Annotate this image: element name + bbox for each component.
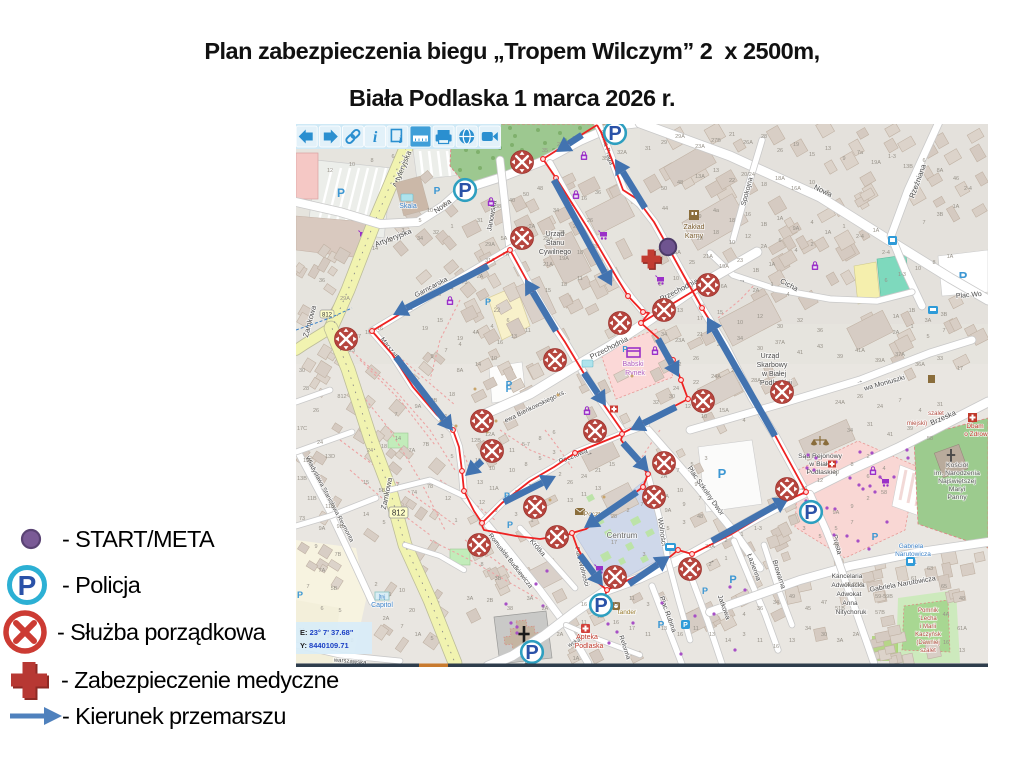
svg-text:9: 9 — [682, 502, 685, 508]
svg-text:24: 24 — [673, 386, 679, 392]
svg-text:12: 12 — [387, 238, 393, 244]
svg-text:10: 10 — [509, 468, 515, 474]
svg-text:P: P — [683, 622, 688, 629]
svg-text:34: 34 — [553, 208, 559, 214]
svg-text:9: 9 — [698, 214, 701, 220]
svg-text:1A: 1A — [825, 230, 832, 236]
svg-text:16: 16 — [581, 602, 587, 608]
svg-text:58: 58 — [881, 490, 887, 496]
svg-text:48: 48 — [959, 596, 965, 602]
svg-text:10: 10 — [677, 488, 683, 494]
svg-text:szalet: szalet — [920, 648, 936, 654]
svg-text:26: 26 — [693, 356, 699, 362]
svg-text:2A: 2A — [661, 474, 668, 480]
svg-text:5: 5 — [834, 526, 837, 532]
svg-text:20/24: 20/24 — [741, 172, 755, 178]
svg-text:7B: 7B — [423, 442, 430, 448]
svg-text:7: 7 — [942, 328, 945, 334]
svg-text:9A: 9A — [319, 526, 326, 532]
svg-text:6: 6 — [884, 278, 887, 284]
svg-text:1B: 1B — [753, 268, 760, 274]
svg-text:46: 46 — [953, 176, 959, 182]
svg-text:3: 3 — [440, 434, 443, 440]
svg-text:13: 13 — [709, 632, 715, 638]
svg-text:15A: 15A — [719, 408, 729, 414]
svg-text:22: 22 — [729, 178, 735, 184]
svg-text:39: 39 — [837, 354, 843, 360]
svg-text:74: 74 — [411, 490, 417, 496]
svg-text:16: 16 — [613, 620, 619, 626]
svg-text:2A: 2A — [542, 606, 549, 612]
svg-text:13: 13 — [613, 602, 619, 608]
svg-text:7a: 7a — [857, 150, 864, 156]
svg-text:8A: 8A — [457, 368, 464, 374]
svg-text:17: 17 — [629, 626, 635, 632]
svg-text:30: 30 — [777, 324, 783, 330]
svg-text:P: P — [729, 574, 736, 586]
svg-text:3: 3 — [742, 632, 745, 638]
svg-text:16: 16 — [677, 632, 683, 638]
svg-text:35: 35 — [602, 156, 608, 162]
svg-text:7B: 7B — [335, 552, 342, 558]
svg-text:12: 12 — [327, 168, 333, 174]
svg-text:40: 40 — [509, 198, 515, 204]
svg-text:13A: 13A — [695, 174, 705, 180]
svg-text:4: 4 — [742, 418, 745, 424]
svg-text:21: 21 — [729, 132, 735, 138]
svg-text:34: 34 — [773, 600, 779, 606]
svg-text:1A: 1A — [873, 228, 880, 234]
svg-text:48: 48 — [697, 514, 703, 520]
svg-text:2-4: 2-4 — [856, 234, 864, 240]
svg-text:9: 9 — [694, 482, 697, 488]
svg-text:2: 2 — [374, 582, 377, 588]
svg-text:Podlaska: Podlaska — [575, 643, 604, 650]
svg-text:1: 1 — [740, 532, 743, 538]
svg-text:13: 13 — [713, 168, 719, 174]
svg-text:P: P — [297, 590, 303, 600]
svg-text:50: 50 — [523, 192, 529, 198]
svg-text:9A: 9A — [793, 226, 800, 232]
svg-text:2A: 2A — [383, 616, 390, 622]
svg-text:13: 13 — [511, 334, 517, 340]
svg-text:1A: 1A — [893, 314, 900, 320]
svg-text:2B: 2B — [487, 598, 494, 604]
svg-text:24A: 24A — [711, 374, 721, 380]
svg-text:2A: 2A — [853, 632, 860, 638]
svg-text:13D: 13D — [325, 454, 335, 460]
svg-text:7: 7 — [394, 412, 397, 418]
svg-text:12: 12 — [479, 500, 485, 506]
svg-text:15: 15 — [545, 288, 551, 294]
svg-text:5: 5 — [418, 218, 421, 224]
svg-text:17: 17 — [697, 316, 703, 322]
svg-text:1: 1 — [910, 324, 913, 330]
svg-text:Najświętszej: Najświętszej — [938, 478, 976, 485]
svg-text:P: P — [434, 186, 441, 197]
svg-text:21: 21 — [595, 468, 601, 474]
svg-text:P: P — [594, 595, 607, 617]
svg-text:2: 2 — [724, 538, 727, 544]
svg-text:22: 22 — [494, 308, 501, 314]
svg-text:3: 3 — [514, 512, 517, 518]
svg-text:P: P — [872, 532, 879, 543]
svg-text:P: P — [18, 570, 37, 601]
svg-text:16: 16 — [773, 644, 779, 650]
svg-text:28: 28 — [611, 514, 617, 520]
svg-text:7: 7 — [698, 496, 701, 502]
svg-text:10: 10 — [809, 180, 815, 186]
svg-text:8: 8 — [932, 260, 935, 266]
svg-text:11: 11 — [757, 638, 763, 644]
svg-text:6: 6 — [778, 238, 781, 244]
svg-text:19A: 19A — [559, 256, 569, 262]
svg-text:5B: 5B — [379, 488, 386, 494]
svg-text:Skarbowy: Skarbowy — [757, 362, 788, 369]
svg-text:29A: 29A — [340, 296, 350, 302]
svg-text:44: 44 — [662, 206, 668, 212]
svg-text:28: 28 — [761, 134, 767, 140]
svg-text:P: P — [622, 345, 628, 354]
svg-text:2: 2 — [866, 454, 869, 460]
svg-text:14: 14 — [372, 246, 378, 252]
svg-text:13B: 13B — [297, 476, 307, 482]
svg-text:1: 1 — [450, 224, 453, 230]
svg-text:11A: 11A — [489, 486, 499, 492]
svg-text:29: 29 — [661, 140, 667, 146]
svg-text:20: 20 — [409, 608, 415, 614]
svg-text:15: 15 — [363, 480, 369, 486]
svg-text:17C: 17C — [297, 426, 307, 432]
svg-text:4: 4 — [918, 408, 921, 414]
svg-text:48: 48 — [677, 180, 683, 186]
svg-text:9A: 9A — [833, 510, 840, 516]
svg-text:18: 18 — [761, 182, 767, 188]
svg-text:9: 9 — [314, 544, 317, 550]
svg-text:45: 45 — [805, 606, 811, 612]
svg-text:11B: 11B — [307, 496, 317, 502]
svg-text:36: 36 — [757, 606, 763, 612]
svg-text:18A: 18A — [775, 176, 785, 182]
svg-text:P: P — [507, 520, 513, 530]
svg-text:P: P — [458, 180, 471, 202]
svg-text:P: P — [485, 297, 491, 307]
svg-text:5: 5 — [430, 636, 433, 642]
svg-text:5-7: 5-7 — [522, 442, 530, 448]
svg-text:23: 23 — [737, 258, 743, 264]
svg-text:1A: 1A — [769, 262, 776, 268]
svg-text:6: 6 — [391, 154, 394, 160]
svg-text:812: 812 — [337, 394, 346, 400]
svg-text:7: 7 — [306, 584, 309, 590]
svg-text:41: 41 — [797, 350, 803, 356]
svg-text:36: 36 — [319, 278, 325, 284]
svg-text:5: 5 — [382, 520, 385, 526]
svg-text:38: 38 — [507, 606, 513, 612]
svg-text:24A: 24A — [835, 400, 845, 406]
svg-text:→: → — [738, 277, 746, 285]
svg-text:7: 7 — [850, 520, 853, 526]
svg-text:8: 8 — [850, 462, 853, 468]
svg-text:10: 10 — [833, 470, 839, 476]
svg-text:13: 13 — [825, 146, 831, 152]
svg-text:1B: 1B — [761, 222, 768, 228]
svg-text:Skala: Skala — [399, 203, 417, 210]
svg-text:23A: 23A — [695, 144, 705, 150]
svg-text:P: P — [506, 380, 513, 391]
svg-text:35: 35 — [542, 148, 548, 154]
svg-text:30: 30 — [669, 394, 675, 400]
svg-text:63: 63 — [927, 566, 933, 572]
svg-text:28A: 28A — [751, 378, 761, 384]
svg-text:13B: 13B — [903, 164, 913, 170]
svg-text:15: 15 — [437, 318, 443, 324]
svg-text:12: 12 — [817, 478, 823, 484]
svg-text:3: 3 — [682, 520, 685, 526]
svg-text:10: 10 — [427, 208, 433, 214]
svg-text:P: P — [337, 186, 345, 200]
svg-text:34: 34 — [847, 428, 853, 434]
svg-text:22: 22 — [693, 380, 699, 386]
svg-text:16: 16 — [943, 640, 949, 646]
svg-text:5: 5 — [338, 608, 341, 614]
svg-text:4A: 4A — [473, 330, 480, 336]
svg-text:29A: 29A — [485, 242, 495, 248]
svg-text:1-3: 1-3 — [898, 272, 906, 278]
svg-text:10: 10 — [729, 240, 735, 246]
svg-text:26A: 26A — [743, 140, 753, 146]
svg-text:13: 13 — [677, 308, 683, 314]
svg-text:19A: 19A — [871, 160, 881, 166]
svg-text:im. Narodzenia: im. Narodzenia — [934, 470, 980, 477]
svg-text:Narutowicza: Narutowicza — [895, 551, 931, 558]
svg-text:P: P — [718, 466, 727, 481]
svg-text:19: 19 — [422, 326, 428, 332]
svg-text:1A: 1A — [777, 216, 784, 222]
svg-text:32: 32 — [797, 318, 803, 324]
svg-text:Rynek: Rynek — [625, 370, 645, 377]
svg-text:2A: 2A — [557, 632, 564, 638]
svg-text:[tnj: [tnj — [379, 595, 386, 601]
svg-text:11: 11 — [581, 492, 587, 498]
svg-text:41A: 41A — [855, 348, 865, 354]
svg-text:5B: 5B — [331, 586, 338, 592]
svg-text:12A: 12A — [485, 432, 495, 438]
svg-text:4: 4 — [810, 220, 813, 226]
svg-text:w Białej: w Białej — [761, 371, 787, 378]
svg-text:3: 3 — [704, 456, 707, 462]
svg-text:6: 6 — [866, 474, 869, 480]
svg-text:65: 65 — [941, 584, 947, 590]
svg-text:7: 7 — [492, 212, 495, 218]
svg-text:78: 78 — [427, 484, 433, 490]
svg-text:P: P — [608, 123, 621, 145]
svg-text:9: 9 — [850, 504, 853, 510]
svg-text:Urząd: Urząd — [761, 353, 780, 360]
svg-text:14: 14 — [363, 512, 369, 518]
svg-text:10: 10 — [701, 414, 707, 420]
svg-text:4: 4 — [794, 248, 797, 254]
svg-text:24: 24 — [317, 440, 323, 446]
svg-text:'Lecha: 'Lecha — [919, 616, 937, 622]
svg-text:3: 3 — [642, 552, 645, 558]
svg-text:4: 4 — [882, 466, 885, 472]
svg-text:11: 11 — [693, 626, 699, 632]
svg-text:12B: 12B — [471, 438, 481, 444]
svg-text:7: 7 — [676, 468, 679, 474]
svg-text:36A: 36A — [915, 362, 925, 368]
svg-text:19A: 19A — [719, 264, 729, 270]
svg-text:9: 9 — [430, 354, 433, 360]
svg-text:32A: 32A — [617, 150, 627, 156]
svg-text:1-3: 1-3 — [888, 154, 896, 160]
svg-text:18: 18 — [449, 392, 455, 398]
svg-text:Cywilnego: Cywilnego — [539, 249, 571, 256]
svg-text:7A: 7A — [319, 568, 326, 574]
svg-text:1: 1 — [842, 224, 845, 230]
svg-text:15: 15 — [717, 310, 723, 316]
svg-text:Centrum: Centrum — [607, 531, 638, 540]
svg-text:5A: 5A — [501, 236, 508, 242]
svg-text:48: 48 — [537, 186, 543, 192]
svg-text:2: 2 — [866, 496, 869, 502]
svg-text:26: 26 — [777, 148, 783, 154]
svg-text:3: 3 — [552, 450, 555, 456]
svg-text:51B: 51B — [835, 606, 845, 612]
svg-text:3A: 3A — [837, 638, 844, 644]
svg-text:i: i — [373, 129, 378, 146]
svg-text:25: 25 — [689, 260, 695, 266]
svg-text:55-55A: 55-55A — [845, 582, 863, 588]
svg-text:31: 31 — [645, 146, 651, 152]
svg-text:13: 13 — [477, 480, 483, 486]
svg-text:E: 23° 7' 37.68": E: 23° 7' 37.68" — [300, 628, 354, 637]
svg-text:1A: 1A — [573, 656, 580, 662]
svg-text:P: P — [525, 642, 538, 664]
svg-text:25A: 25A — [543, 236, 553, 242]
svg-text:8: 8 — [480, 562, 483, 568]
svg-text:26: 26 — [857, 394, 863, 400]
svg-text:o Zdrow: o Zdrow — [964, 431, 988, 438]
svg-text:24: 24 — [877, 404, 883, 410]
svg-text:7: 7 — [922, 220, 925, 226]
svg-text:8: 8 — [442, 202, 445, 208]
svg-text:13: 13 — [959, 648, 965, 654]
svg-text:8: 8 — [658, 282, 661, 288]
svg-text:3B: 3B — [495, 576, 502, 582]
svg-text:P: P — [702, 586, 708, 596]
svg-text:3: 3 — [646, 602, 649, 608]
svg-text:Gabriela: Gabriela — [899, 543, 924, 550]
svg-text:Kancelaria: Kancelaria — [832, 573, 863, 580]
svg-text:Apteka: Apteka — [576, 634, 598, 641]
svg-text:30: 30 — [299, 368, 305, 374]
svg-text:32: 32 — [653, 400, 659, 406]
svg-text:2: 2 — [810, 242, 813, 248]
svg-text:32: 32 — [433, 230, 439, 236]
svg-text:6: 6 — [320, 606, 323, 612]
svg-text:1: 1 — [454, 518, 457, 524]
svg-text:7: 7 — [898, 398, 901, 404]
svg-text:11: 11 — [629, 596, 635, 602]
svg-text:27B: 27B — [711, 138, 721, 144]
svg-text:8: 8 — [370, 158, 373, 164]
svg-text:1A: 1A — [953, 204, 960, 210]
svg-text:8: 8 — [826, 190, 829, 196]
svg-text:26: 26 — [567, 480, 573, 486]
svg-text:Sąd Rejonowy: Sąd Rejonowy — [798, 453, 842, 460]
svg-text:37A: 37A — [895, 352, 905, 358]
svg-text:8: 8 — [538, 436, 541, 442]
svg-text:8: 8 — [524, 462, 527, 468]
svg-text:15: 15 — [809, 152, 815, 158]
svg-text:11: 11 — [645, 632, 651, 638]
svg-text:4: 4 — [458, 342, 461, 348]
svg-text:9B: 9B — [337, 524, 344, 530]
svg-text:1A: 1A — [415, 632, 422, 638]
svg-text:31: 31 — [867, 422, 873, 428]
svg-text:8A: 8A — [937, 168, 944, 174]
svg-text:11: 11 — [577, 276, 583, 282]
svg-text:3A: 3A — [467, 596, 474, 602]
svg-text:16A: 16A — [791, 186, 801, 192]
svg-text:33: 33 — [937, 356, 943, 362]
svg-text:15E: 15E — [303, 458, 313, 464]
svg-text:16: 16 — [581, 196, 587, 202]
svg-text:3B: 3B — [941, 312, 948, 318]
svg-text:48: 48 — [833, 542, 839, 548]
svg-text:9A: 9A — [415, 404, 422, 410]
svg-text:szalet: szalet — [928, 411, 944, 417]
svg-text:21A: 21A — [703, 254, 713, 260]
svg-text:2-4: 2-4 — [964, 186, 972, 192]
svg-text:2A: 2A — [893, 330, 900, 336]
svg-text:23A: 23A — [675, 338, 685, 344]
svg-text:30: 30 — [757, 346, 763, 352]
svg-text:59-59B: 59-59B — [875, 594, 893, 600]
svg-text:11B: 11B — [325, 504, 335, 510]
svg-text:812: 812 — [392, 509, 406, 518]
svg-text:31: 31 — [477, 218, 483, 224]
svg-text:18: 18 — [729, 218, 735, 224]
svg-text:4: 4 — [786, 292, 789, 298]
svg-text:11: 11 — [581, 620, 587, 626]
svg-text:29A: 29A — [675, 134, 685, 140]
svg-text:9A: 9A — [665, 508, 672, 514]
svg-text:11: 11 — [509, 448, 515, 454]
svg-text:61: 61 — [911, 576, 917, 582]
svg-text:10: 10 — [915, 266, 921, 272]
svg-text:41: 41 — [887, 432, 893, 438]
svg-text:38: 38 — [495, 204, 501, 210]
svg-text:39: 39 — [907, 426, 913, 432]
svg-text:7A: 7A — [409, 448, 416, 454]
svg-text:13: 13 — [567, 498, 573, 504]
svg-text:6: 6 — [506, 318, 509, 324]
svg-text:34: 34 — [661, 332, 667, 338]
svg-text:12: 12 — [685, 404, 691, 410]
svg-text:49: 49 — [789, 594, 795, 600]
svg-text:Panny: Panny — [947, 494, 967, 501]
svg-text:10: 10 — [673, 276, 679, 282]
svg-text:12: 12 — [745, 234, 751, 240]
svg-text:4: 4 — [490, 324, 493, 330]
svg-text:3A: 3A — [925, 318, 932, 324]
svg-text:21: 21 — [697, 332, 703, 338]
svg-text:5: 5 — [538, 456, 541, 462]
svg-text:36: 36 — [595, 190, 601, 196]
svg-text:21A: 21A — [543, 262, 553, 268]
